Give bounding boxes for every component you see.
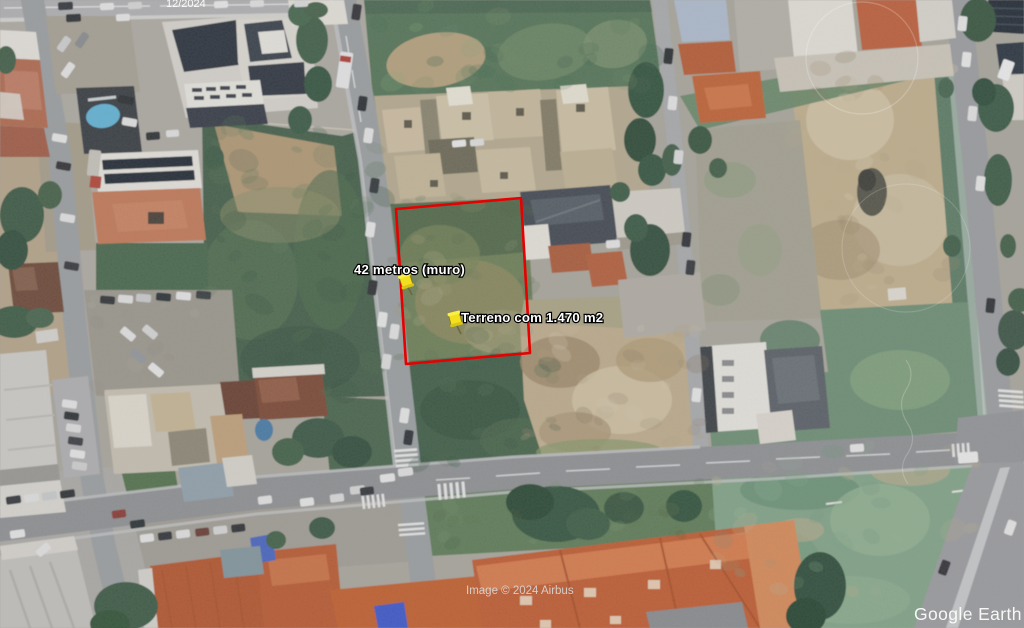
svg-text:Terreno com 1.470 m2: Terreno com 1.470 m2 — [461, 310, 603, 325]
svg-text:12/2024: 12/2024 — [166, 0, 206, 10]
svg-text:42 metros (muro): 42 metros (muro) — [354, 262, 465, 277]
svg-text:Google Earth: Google Earth — [914, 604, 1022, 624]
svg-text:Image © 2024 Airbus: Image © 2024 Airbus — [466, 585, 574, 597]
